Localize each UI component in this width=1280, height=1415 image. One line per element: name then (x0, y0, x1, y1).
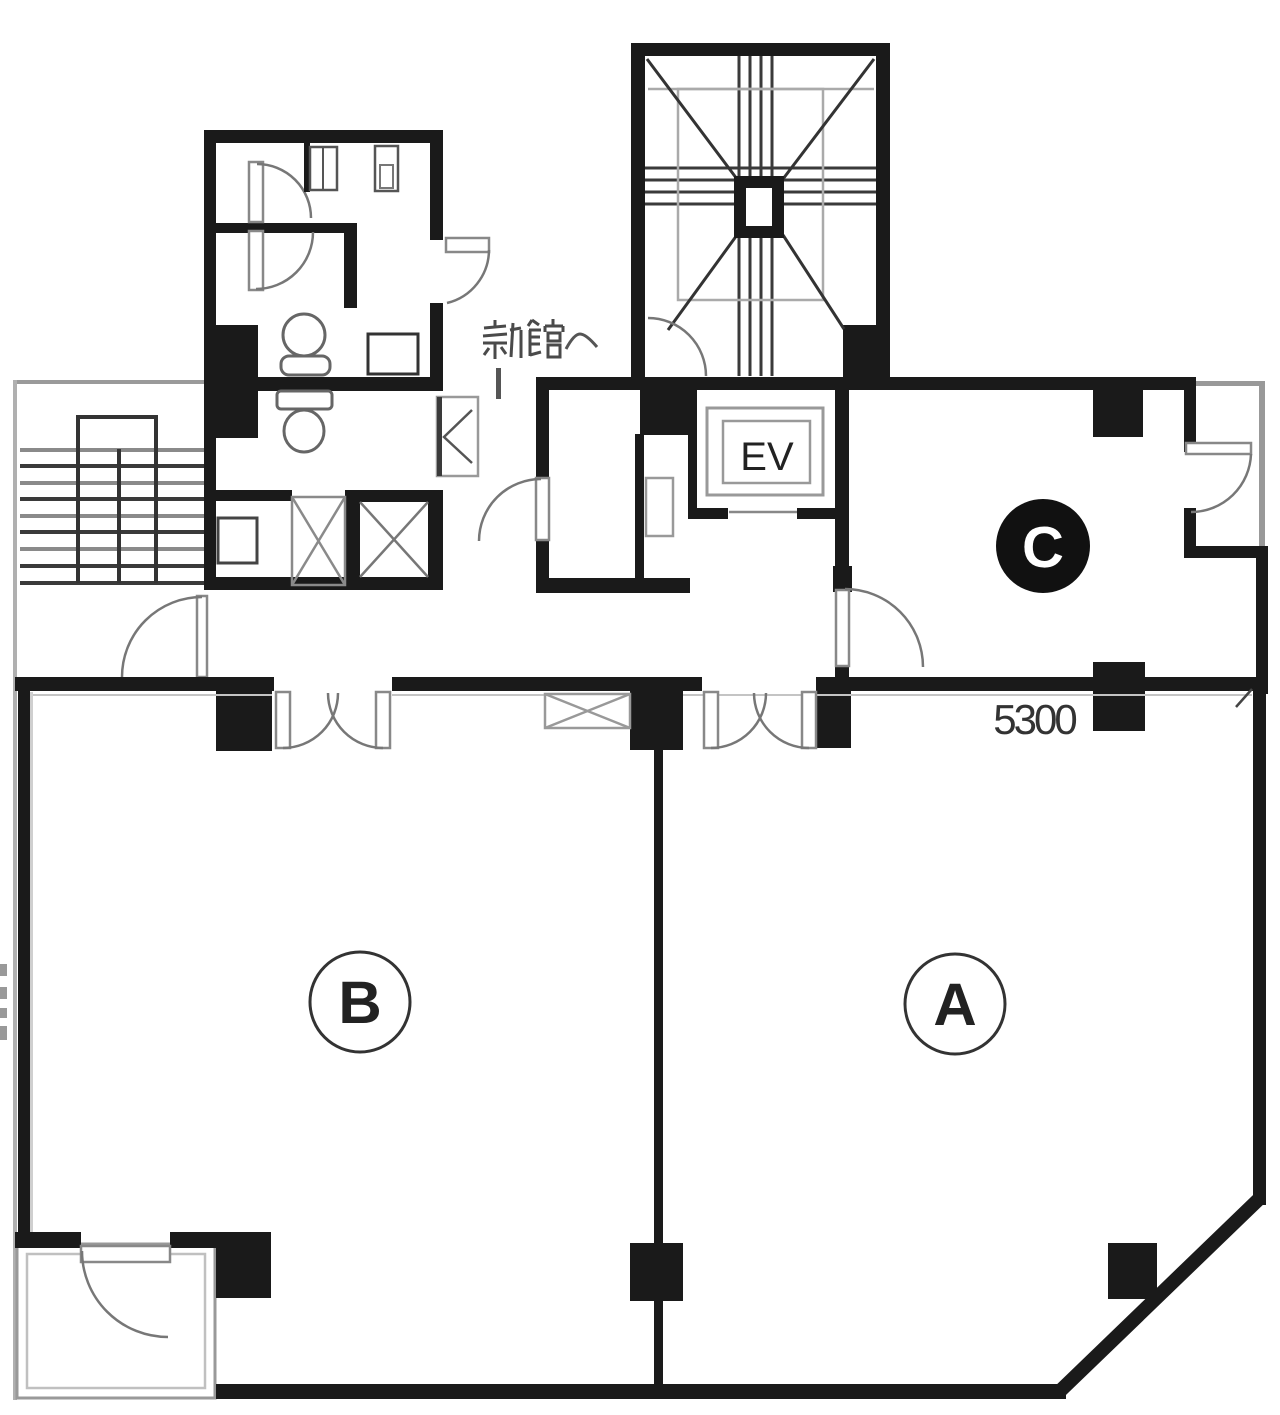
svg-text:EV: EV (740, 435, 794, 479)
svg-text:5300: 5300 (993, 696, 1076, 743)
svg-text:A: A (933, 971, 976, 1038)
svg-text:B: B (338, 969, 381, 1036)
svg-text:C: C (1022, 515, 1064, 580)
